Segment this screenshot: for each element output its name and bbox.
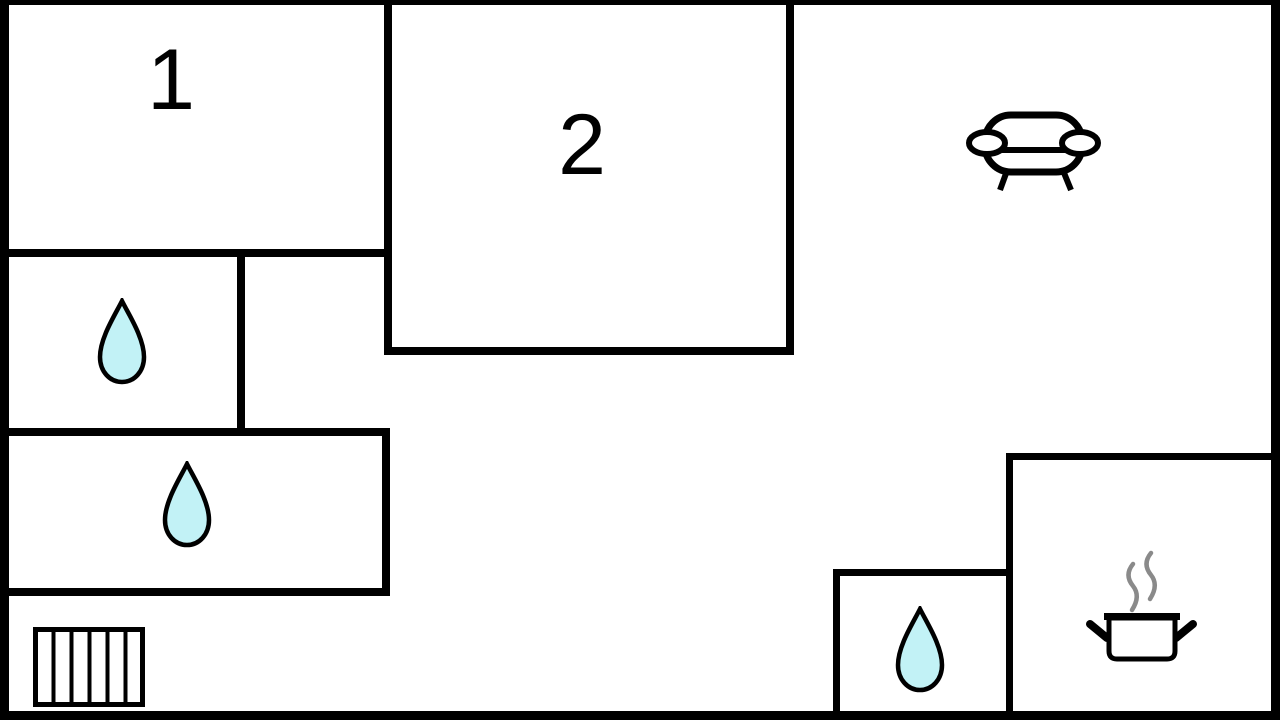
wall-utility-left <box>833 569 840 720</box>
wall-room1-room2-divider <box>384 5 392 355</box>
water-drop-icon <box>96 298 148 386</box>
wall-bathroom1-right <box>237 249 245 436</box>
steam-line <box>1147 553 1155 599</box>
room-2-label: 2 <box>522 93 642 197</box>
wall-bathroom2-bottom <box>9 588 390 596</box>
wall-room2-bottom <box>384 347 793 355</box>
wall-kitchen-left <box>1006 453 1013 720</box>
room-1-label: 1 <box>111 28 231 132</box>
wall-outer-right <box>1271 0 1280 720</box>
wall-kitchen-top <box>1006 453 1280 460</box>
wall-outer-bottom <box>0 711 1280 720</box>
wall-utility-top <box>833 569 1013 576</box>
water-drop-icon <box>161 461 213 549</box>
steam-line <box>1129 564 1137 610</box>
cooking-pot-icon <box>1085 548 1198 668</box>
wall-bathroom1-bottom <box>9 428 390 436</box>
wall-room1-bottom <box>9 249 392 257</box>
wall-outer-left <box>0 0 9 720</box>
wall-room2-right <box>786 0 794 355</box>
stairs-icon <box>33 627 145 707</box>
wall-bathroom2-right <box>382 428 390 596</box>
wall-outer-top <box>0 0 1280 5</box>
water-drop-icon <box>894 606 946 694</box>
sofa-icon <box>960 105 1110 197</box>
floor-plan: 1 2 <box>0 0 1280 720</box>
